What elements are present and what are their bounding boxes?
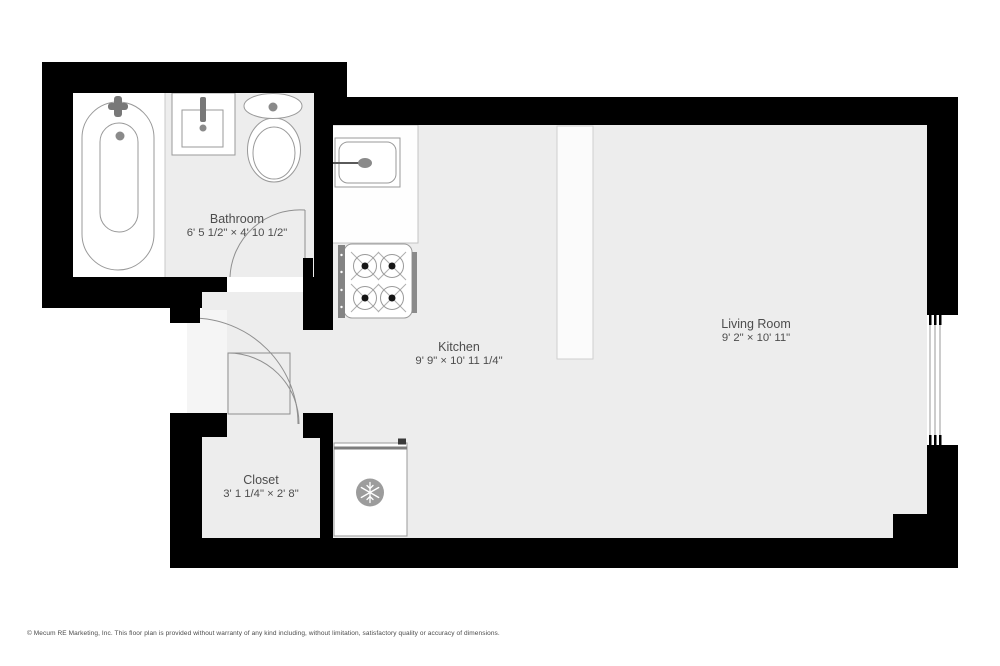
bathtub-faucet-crossbar-icon: [108, 103, 128, 110]
copyright-disclaimer: © Mecum RE Marketing, Inc. This floor pl…: [27, 630, 500, 637]
stove: [338, 244, 417, 318]
bathroom-sink-faucet-icon: [200, 97, 206, 122]
wall-closet-right: [320, 413, 333, 538]
snowflake-icon: [356, 479, 384, 507]
refrigerator-door-seam: [334, 447, 407, 450]
room-divider: [557, 126, 593, 359]
wall-bottom: [170, 538, 958, 568]
room-label-kitchen: Kitchen 9' 9" × 10' 11 1/4": [415, 340, 502, 368]
wall-bathroom-bottom-upper: [42, 277, 227, 292]
room-dimensions: 3' 1 1/4" × 2' 8": [223, 487, 298, 501]
wall-bathroom-top: [42, 62, 347, 93]
burner-center-dot: [389, 263, 396, 270]
room-name: Bathroom: [187, 212, 288, 226]
room-dimensions: 6' 5 1/2" × 4' 10 1/2": [187, 226, 288, 240]
bathtub-drain-icon: [116, 132, 125, 141]
wall-closet-left: [170, 413, 202, 538]
wall-inner-block: [893, 514, 927, 538]
room-name: Closet: [223, 473, 298, 487]
stove-knob-icon: [340, 271, 342, 273]
kitchen-sink: [333, 138, 400, 187]
burner-center-dot: [389, 295, 396, 302]
stove-knob-icon: [340, 306, 342, 308]
room-label-living-room: Living Room 9' 2" × 10' 11": [721, 317, 790, 345]
wall-right-upper: [927, 97, 958, 315]
refrigerator-handle: [398, 439, 406, 445]
room-name: Kitchen: [415, 340, 502, 354]
wall-bathroom-bottom-lower: [42, 292, 202, 308]
main-floor: [333, 125, 927, 538]
room-name: Living Room: [721, 317, 790, 331]
burner-center-dot: [362, 263, 369, 270]
window: [927, 315, 958, 445]
stove-knob-icon: [340, 289, 342, 291]
floor-plan-drawing: [0, 0, 1000, 666]
wall-entry-step: [170, 306, 200, 323]
toilet-flush-icon: [269, 103, 278, 112]
bathtub: [82, 96, 154, 270]
wall-door-jamb: [303, 258, 313, 278]
room-dimensions: 9' 9" × 10' 11 1/4": [415, 354, 502, 368]
wall-closet-top-left: [202, 413, 227, 437]
room-label-closet: Closet 3' 1 1/4" × 2' 8": [223, 473, 298, 501]
room-label-bathroom: Bathroom 6' 5 1/2" × 4' 10 1/2": [187, 212, 288, 240]
toilet: [244, 94, 302, 183]
kitchen-sink-faucet-head-icon: [358, 158, 372, 168]
wall-top: [315, 97, 958, 125]
stove-knob-icon: [340, 254, 342, 256]
wall-bathroom-left: [42, 62, 73, 308]
refrigerator: [334, 439, 407, 537]
floor-plan-page: Bathroom 6' 5 1/2" × 4' 10 1/2" Kitchen …: [0, 0, 1000, 666]
stove-handle: [412, 252, 417, 313]
window-opening: [927, 315, 958, 445]
burner-center-dot: [362, 295, 369, 302]
bathroom-sink-drain-icon: [200, 125, 207, 132]
entry-nook-floor: [187, 310, 227, 413]
bathroom-sink: [172, 93, 235, 155]
toilet-bowl-outer: [248, 118, 301, 182]
room-dimensions: 9' 2" × 10' 11": [721, 331, 790, 345]
wall-corner-block: [303, 277, 333, 330]
